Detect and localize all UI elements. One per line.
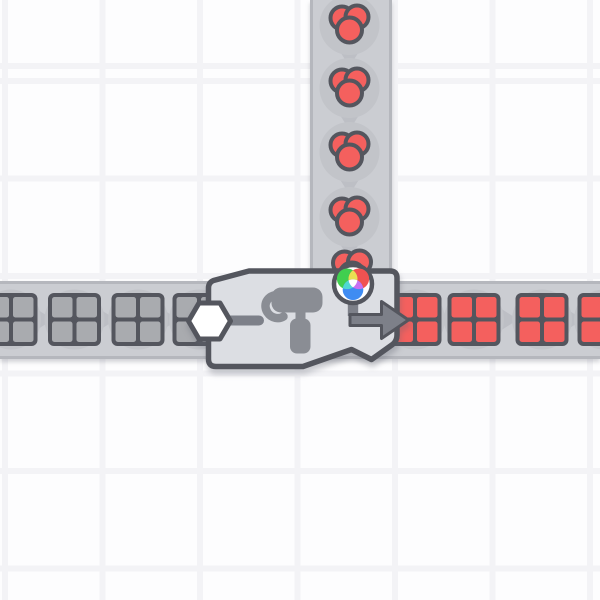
shape-item-square-uncolored — [112, 293, 165, 346]
shape-item-square-uncolored — [48, 293, 101, 346]
hexagon-shape-input-port — [189, 303, 231, 339]
shape-item-square-red — [516, 293, 569, 346]
shape-item-square-red — [578, 293, 600, 346]
shape-item-square-uncolored — [0, 293, 38, 346]
painter-machine[interactable] — [189, 265, 409, 367]
game-viewport[interactable] — [0, 0, 600, 600]
factory-scene — [0, 0, 600, 600]
shape-item-square-red — [448, 293, 501, 346]
rgb-color-wheel-icon — [334, 265, 372, 303]
